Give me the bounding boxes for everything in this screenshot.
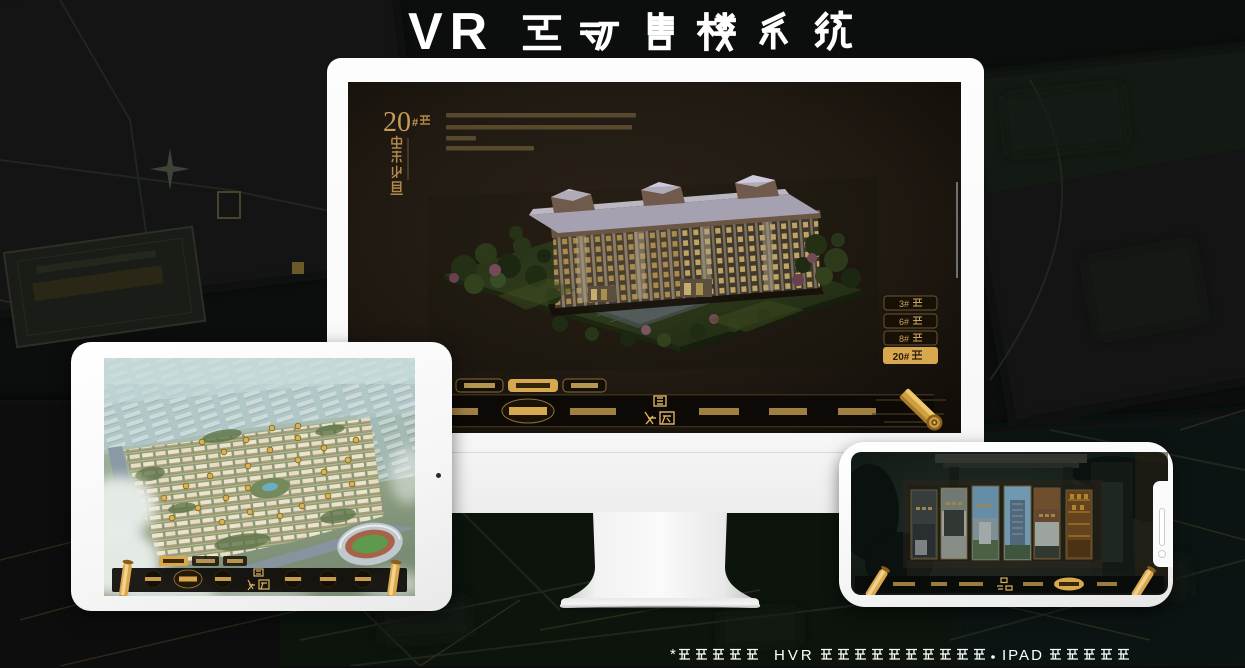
svg-text:VR: VR bbox=[408, 4, 494, 60]
svg-text:#: # bbox=[412, 117, 418, 129]
svg-text:6#: 6# bbox=[899, 317, 909, 327]
svg-text:20: 20 bbox=[383, 107, 411, 138]
svg-text:IPAD: IPAD bbox=[1002, 647, 1044, 664]
svg-text:*: * bbox=[670, 646, 676, 663]
svg-text:20#: 20# bbox=[893, 352, 910, 363]
svg-text:HVR: HVR bbox=[774, 647, 815, 664]
svg-text:8#: 8# bbox=[899, 334, 909, 344]
svg-text:3#: 3# bbox=[899, 299, 909, 309]
